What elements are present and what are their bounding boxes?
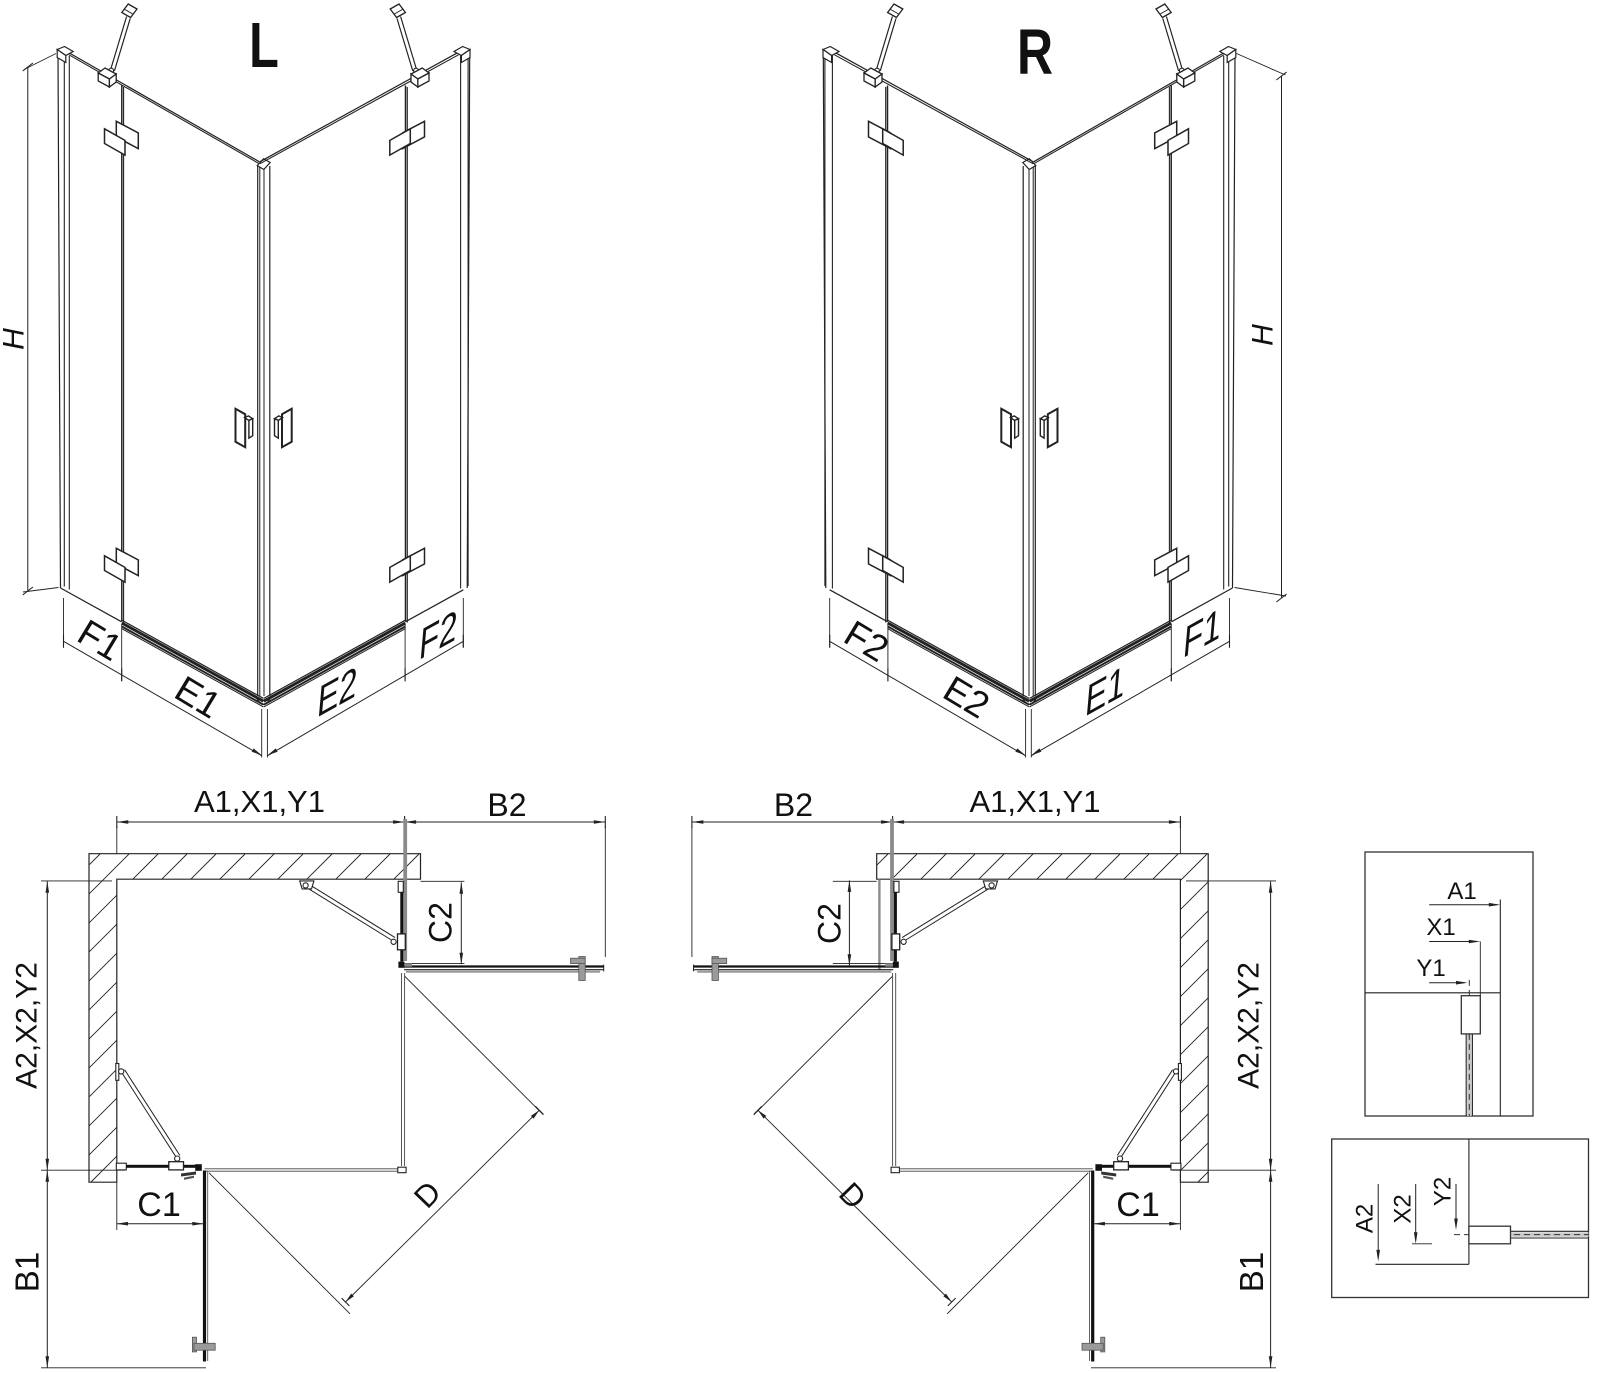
svg-text:X1: X1 [1426, 914, 1455, 941]
svg-text:F1: F1 [71, 612, 129, 669]
svg-text:Y2: Y2 [1430, 1177, 1457, 1206]
svg-text:R: R [1017, 17, 1053, 88]
svg-text:A2: A2 [1352, 1204, 1379, 1233]
svg-text:C2: C2 [423, 902, 459, 943]
svg-text:A2,X2,Y2: A2,X2,Y2 [1233, 962, 1266, 1089]
svg-text:F1: F1 [1181, 597, 1223, 668]
svg-text:B2: B2 [774, 787, 813, 823]
svg-text:Y1: Y1 [1416, 955, 1445, 982]
svg-text:C1: C1 [1116, 1186, 1159, 1224]
svg-text:A1: A1 [1447, 878, 1476, 905]
svg-text:L: L [249, 11, 279, 82]
svg-text:F2: F2 [417, 599, 459, 670]
svg-text:A1,X1,Y1: A1,X1,Y1 [970, 784, 1101, 819]
svg-text:B2: B2 [487, 787, 526, 823]
svg-text:A2,X2,Y2: A2,X2,Y2 [11, 962, 44, 1089]
svg-text:H: H [0, 328, 31, 350]
svg-text:B1: B1 [9, 1252, 46, 1292]
svg-text:H: H [1247, 324, 1280, 346]
svg-text:B1: B1 [1233, 1252, 1270, 1292]
svg-text:C2: C2 [812, 903, 848, 944]
svg-text:X2: X2 [1390, 1194, 1417, 1223]
svg-text:D: D [832, 1175, 873, 1215]
svg-text:C1: C1 [137, 1186, 180, 1224]
svg-text:D: D [407, 1174, 448, 1214]
svg-text:A1,X1,Y1: A1,X1,Y1 [194, 784, 325, 819]
